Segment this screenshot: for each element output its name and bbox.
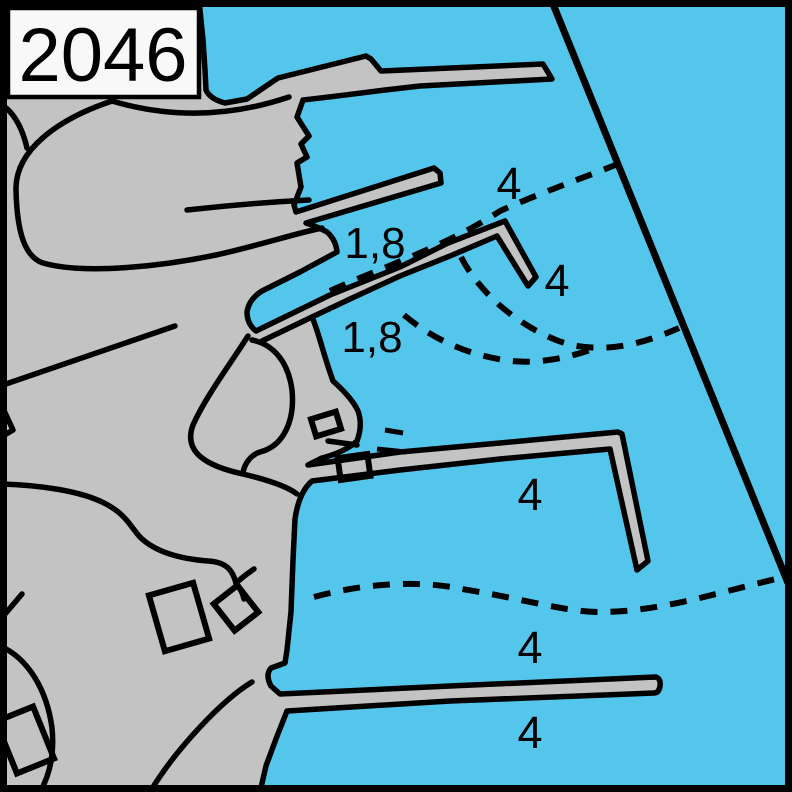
nautical-chart: 4 4 4 4 4 1,8 1,8 2046	[0, 0, 792, 792]
sounding-below-south-pier: 4	[517, 707, 542, 758]
jetty-tick-upper	[385, 430, 403, 433]
sounding-north: 4	[496, 158, 521, 209]
sounding-pierhead: 4	[544, 255, 569, 306]
depth-label-inner-north: 1,8	[344, 219, 405, 268]
depth-label-inner-south: 1,8	[341, 313, 402, 362]
sounding-central: 4	[517, 469, 542, 520]
chart-number: 2046	[18, 13, 187, 98]
sounding-above-south-pier: 4	[517, 622, 542, 673]
chart-canvas: 4 4 4 4 4 1,8 1,8 2046	[0, 0, 792, 792]
jetty-tick-lower	[377, 449, 406, 452]
